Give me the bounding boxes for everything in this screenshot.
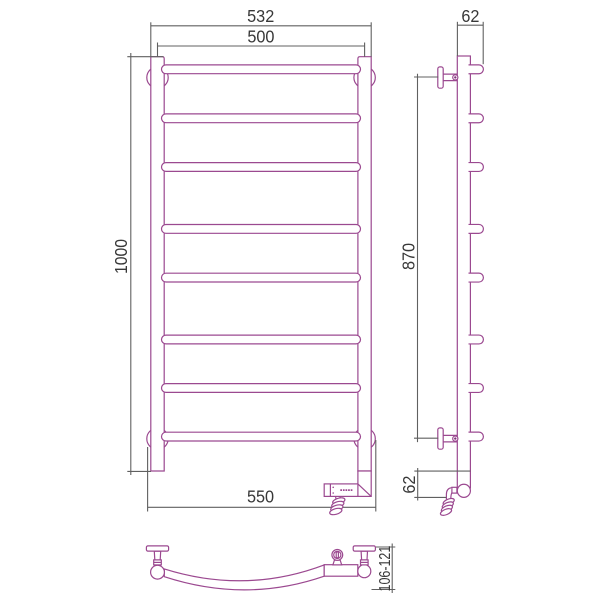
svg-text:550: 550 <box>247 487 274 507</box>
svg-text:62: 62 <box>461 6 479 26</box>
svg-text:106-121: 106-121 <box>377 546 395 592</box>
svg-text:1000: 1000 <box>111 239 131 274</box>
svg-text:500: 500 <box>247 27 274 47</box>
svg-text:532: 532 <box>247 6 274 26</box>
svg-text:62: 62 <box>399 476 419 494</box>
svg-text:870: 870 <box>399 243 419 270</box>
